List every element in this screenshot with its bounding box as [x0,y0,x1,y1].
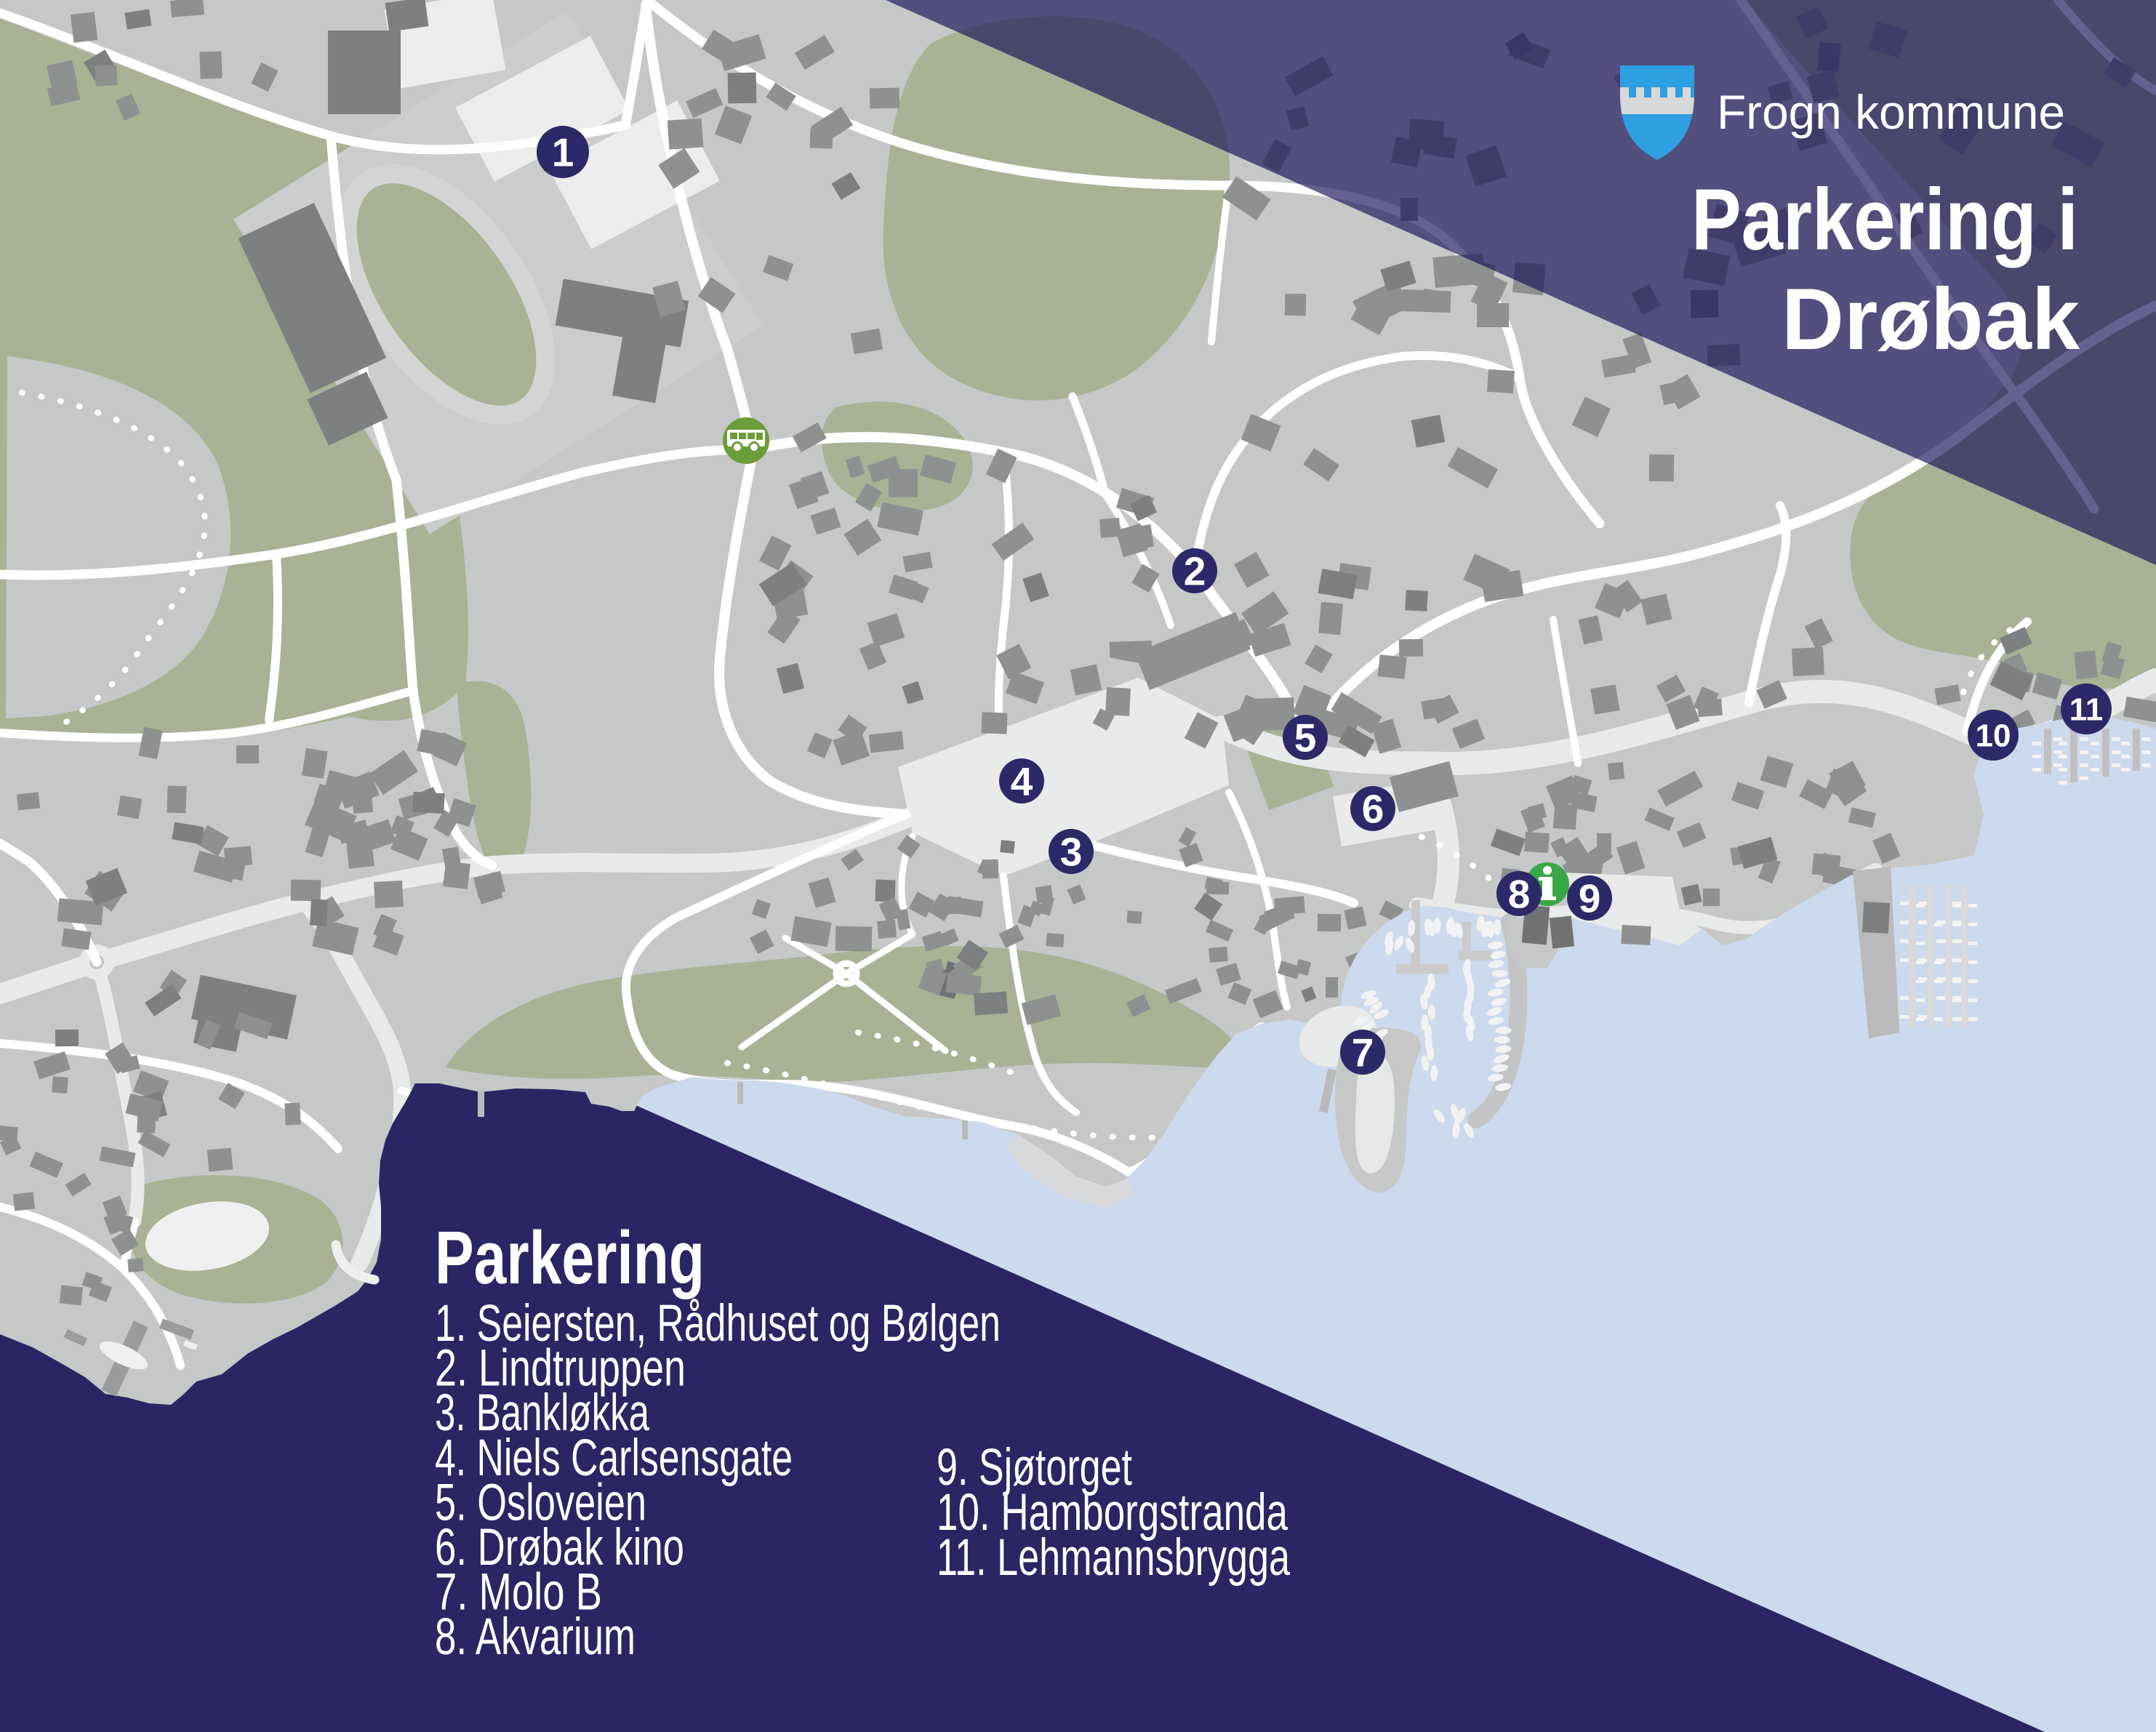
svg-text:2: 2 [1184,549,1206,594]
svg-text:8. Akvarium: 8. Akvarium [435,1608,636,1666]
svg-text:Parkering: Parkering [435,1216,705,1299]
svg-text:1: 1 [552,130,574,175]
svg-text:5: 5 [1294,715,1317,761]
svg-text:4: 4 [1011,759,1033,804]
svg-text:6: 6 [1362,787,1384,832]
svg-text:Parkering i: Parkering i [1691,171,2078,268]
svg-text:8: 8 [1508,872,1531,917]
svg-text:Drøbak: Drøbak [1782,270,2080,368]
svg-text:9: 9 [1579,876,1601,921]
svg-text:11: 11 [2069,692,2104,728]
svg-text:Frogn kommune: Frogn kommune [1717,85,2065,139]
svg-text:10: 10 [1976,718,2011,754]
svg-text:7: 7 [1352,1030,1374,1075]
svg-text:11. Lehmannsbrygga: 11. Lehmannsbrygga [937,1529,1290,1587]
svg-text:3: 3 [1060,830,1083,875]
